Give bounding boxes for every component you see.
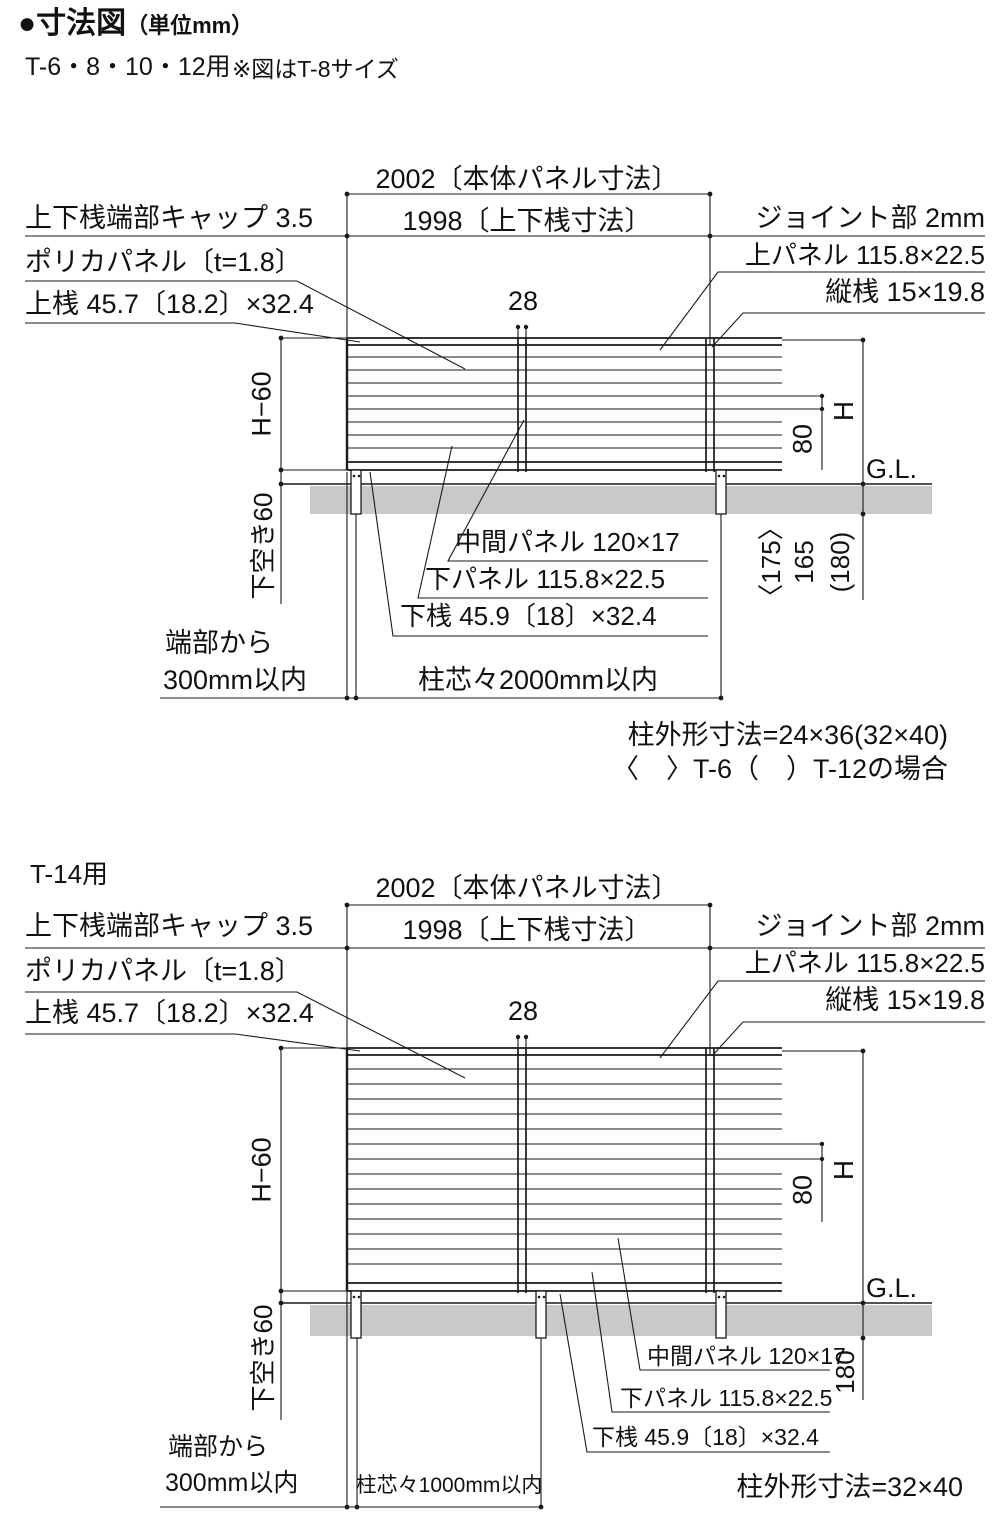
d1-note-post-size-2: 〈 〉T-6（ ）T-12の場合 xyxy=(612,755,948,783)
d2-label-poly-panel: ポリカパネル〔t=1.8〕 xyxy=(25,957,302,985)
fence-joints xyxy=(518,1048,714,1293)
d1-dim-28: 28 xyxy=(508,287,538,315)
d1-label-mid-panel: 中間パネル 120×17 xyxy=(455,529,680,556)
ground-band xyxy=(310,1305,932,1336)
d1-dim-h: H xyxy=(830,401,858,421)
d1-note-post-size: 柱外形寸法=24×36(32×40) xyxy=(628,721,948,749)
d2-label-top-rail: 上桟 45.7〔18.2〕×32.4 xyxy=(25,999,314,1027)
fence-rails xyxy=(347,338,782,470)
fence-joints xyxy=(518,338,714,472)
subtitle-models: T-6・8・10・12用 xyxy=(25,54,231,80)
dimension-dots xyxy=(279,903,866,1510)
d1-dim-bottom-gap: 下空き60 xyxy=(250,493,276,600)
d2-note-post-size: 柱外形寸法=32×40 xyxy=(736,1473,963,1501)
d1-label-vertical-rail: 縦桟 15×19.8 xyxy=(825,278,985,306)
d1-dim-rail: 1998〔上下桟寸法〕 xyxy=(402,207,651,235)
d2-dim-body-panel: 2002〔本体パネル寸法〕 xyxy=(375,874,678,902)
d2-label-vertical-rail: 縦桟 15×19.8 xyxy=(825,986,985,1014)
page-title-unit: （単位mm） xyxy=(126,13,253,38)
d2-label-mid-panel: 中間パネル 120×17 xyxy=(647,1344,846,1368)
d2-label-edge-1: 端部から xyxy=(168,1434,268,1460)
d2-dim-28: 28 xyxy=(508,997,538,1025)
d2-dim-80: 80 xyxy=(790,1175,817,1205)
d1-label-joint: ジョイント部 2mm xyxy=(756,204,986,232)
ground-band xyxy=(310,486,932,514)
d1-label-bottom-panel: 下パネル 115.8×22.5 xyxy=(425,566,665,593)
d2-dim-post-pitch: 柱芯々1000mm以内 xyxy=(356,1475,543,1497)
d1-dim-depth-t12: (180) xyxy=(827,532,853,593)
d2-dim-h60: H−60 xyxy=(249,1137,276,1202)
d2-label-edge-2: 300mm以内 xyxy=(165,1470,298,1496)
d2-title: T-14用 xyxy=(30,861,108,888)
d1-label-top-rail: 上桟 45.7〔18.2〕×32.4 xyxy=(25,290,314,318)
d1-dim-depth-t6: 〈175〉 xyxy=(758,514,784,609)
fence-slats xyxy=(347,1069,782,1264)
d1-dim-body-panel: 2002〔本体パネル寸法〕 xyxy=(375,165,678,193)
d2-dim-h: H xyxy=(830,1160,858,1180)
d2-label-joint: ジョイント部 2mm xyxy=(756,912,986,940)
d1-dim-post-pitch: 柱芯々2000mm以内 xyxy=(418,666,658,694)
d2-label-gl: G.L. xyxy=(866,1274,917,1302)
d2-dim-rail: 1998〔上下桟寸法〕 xyxy=(402,916,651,944)
d2-label-cap: 上下桟端部キャップ 3.5 xyxy=(25,912,313,940)
d1-label-edge-2: 300mm以内 xyxy=(163,666,307,694)
d1-label-bottom-rail: 下桟 45.9〔18〕×32.4 xyxy=(400,603,657,630)
d1-label-poly-panel: ポリカパネル〔t=1.8〕 xyxy=(25,248,302,276)
d2-label-bottom-panel: 下パネル 115.8×22.5 xyxy=(620,1386,832,1410)
d2-dim-bottom-gap: 下空き60 xyxy=(250,1305,276,1412)
d1-label-edge-1: 端部から xyxy=(165,629,273,657)
d1-label-cap: 上下桟端部キャップ 3.5 xyxy=(25,204,313,232)
d1-label-gl: G.L. xyxy=(866,455,917,483)
page-title: ●寸法図（単位mm） xyxy=(18,8,253,40)
subtitle-note: ※図はT-8サイズ xyxy=(232,57,399,81)
d2-label-top-panel: 上パネル 115.8×22.5 xyxy=(745,950,985,977)
fence-slats xyxy=(347,357,782,448)
d1-dim-h60: H−60 xyxy=(249,371,276,436)
d2-label-bottom-rail: 下桟 45.9〔18〕×32.4 xyxy=(592,1425,819,1449)
dimension-drawing-page: ●寸法図（単位mm） T-6・8・10・12用 ※図はT-8サイズ 2002〔本… xyxy=(0,0,1000,1521)
page-title-text: ●寸法図 xyxy=(18,7,126,40)
d1-dim-depth: 165 xyxy=(791,540,817,583)
d1-label-top-panel: 上パネル 115.8×22.5 xyxy=(745,242,985,269)
d1-dim-80: 80 xyxy=(790,424,817,454)
